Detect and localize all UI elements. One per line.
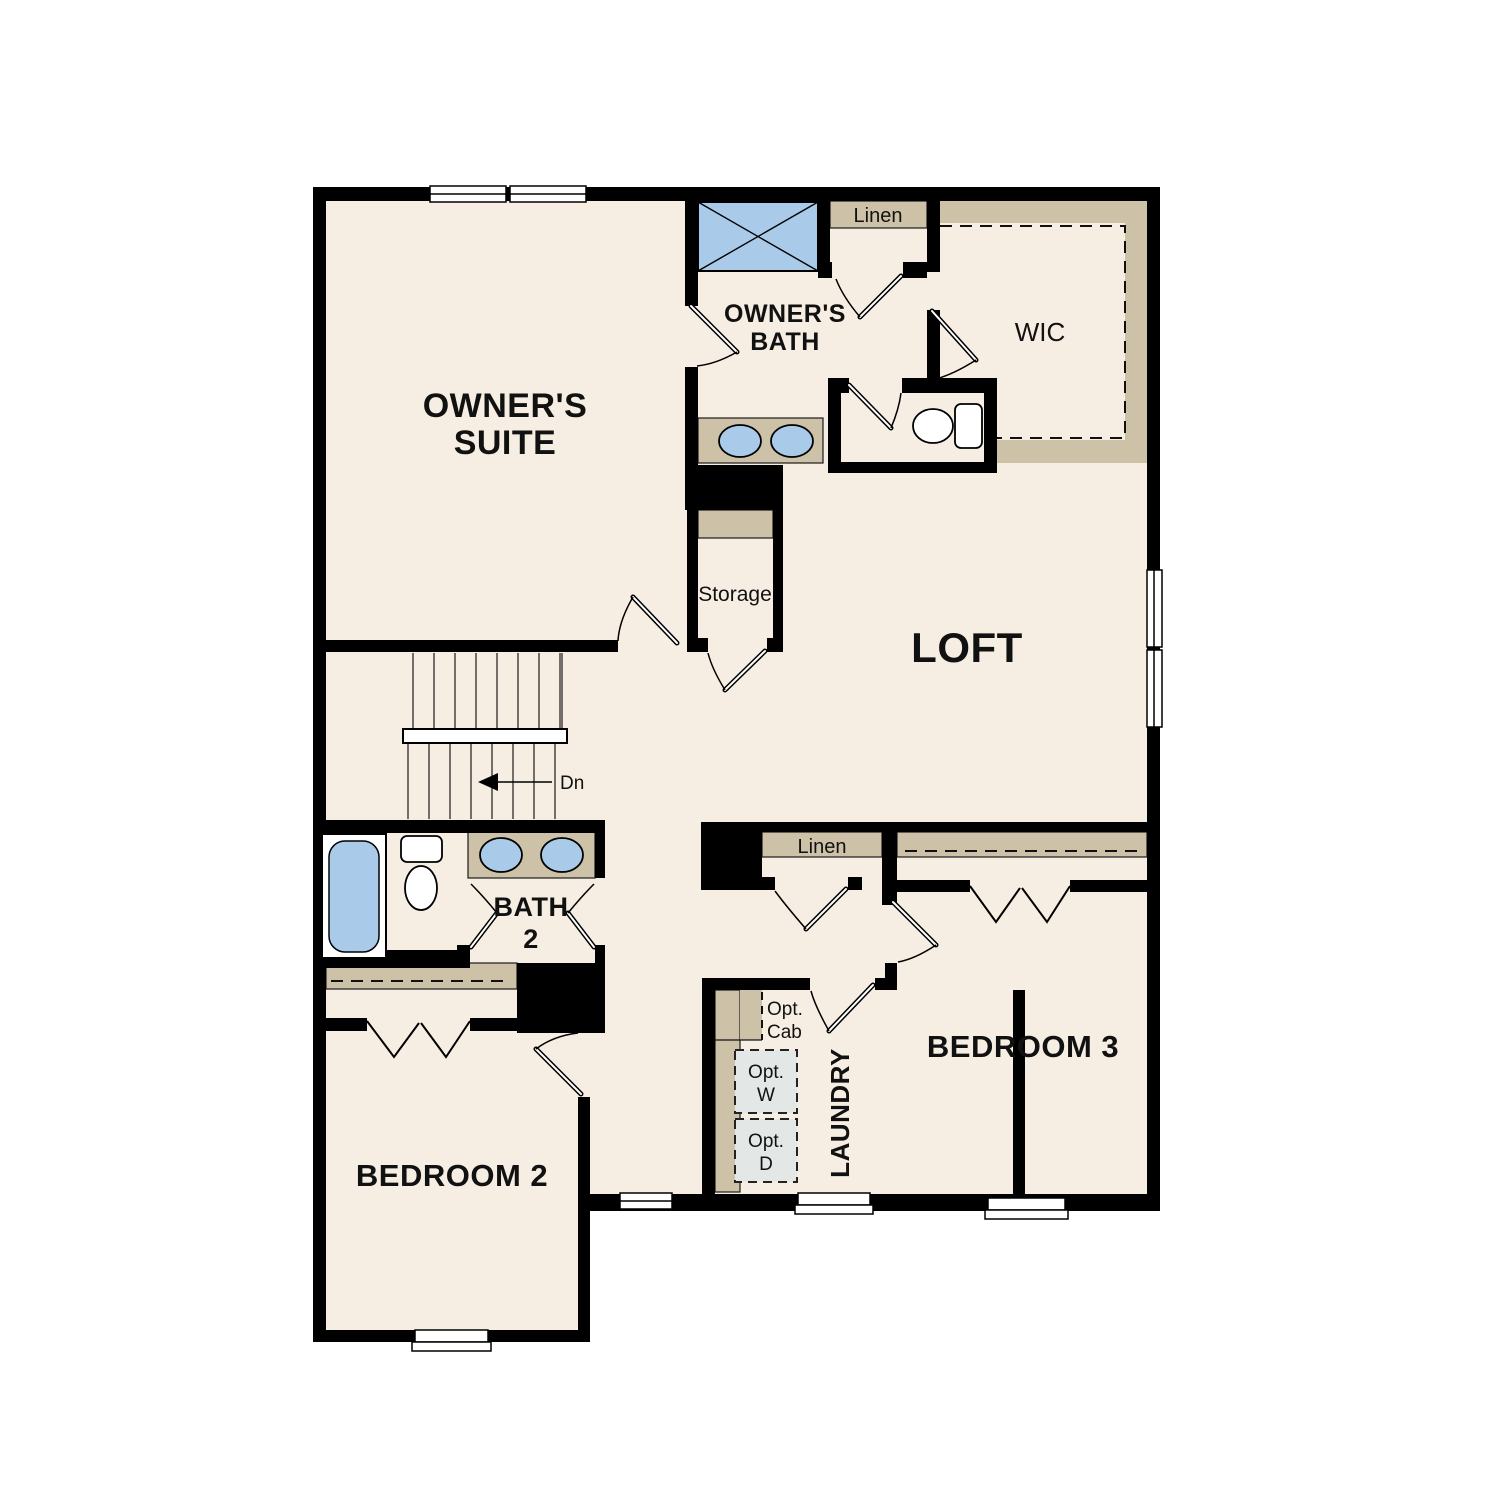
window-bedroom3 bbox=[985, 1198, 1068, 1219]
owners-suite-label-line2: SUITE bbox=[454, 424, 557, 462]
stair-railing bbox=[403, 729, 567, 743]
bedroom3-label: BEDROOM 3 bbox=[927, 1029, 1119, 1064]
wic-shelf-right bbox=[1125, 223, 1147, 440]
bathtub bbox=[322, 834, 386, 958]
opt-cab-label-line2: Cab bbox=[767, 1022, 802, 1043]
bedroom2-label: BEDROOM 2 bbox=[356, 1158, 548, 1193]
linen-top-label: Linen bbox=[854, 205, 903, 227]
window-hallway bbox=[620, 1193, 672, 1209]
window-loft-1 bbox=[1147, 570, 1162, 647]
storage-label: Storage bbox=[698, 583, 772, 606]
window-owners-suite-2 bbox=[510, 186, 586, 202]
opt-cab-label-line1: Opt. bbox=[767, 999, 803, 1020]
laundry-label: LAUNDRY bbox=[825, 1048, 855, 1178]
bath2-label-line2: 2 bbox=[523, 924, 539, 954]
owners-suite-label-line1: OWNER'S bbox=[423, 387, 588, 425]
shower bbox=[698, 202, 818, 271]
owners-bath-label-line2: BATH bbox=[750, 328, 820, 356]
window-loft-2 bbox=[1147, 650, 1162, 727]
storage-shelf bbox=[698, 510, 773, 538]
opt-washer-label-line2: W bbox=[757, 1085, 775, 1106]
floor-plan-canvas: OWNER'S SUITE OWNER'S BATH WIC Linen Sto… bbox=[0, 0, 1500, 1500]
bath2-label-line1: BATH bbox=[494, 892, 569, 922]
stairs-down-label: Dn bbox=[560, 773, 584, 794]
loft-label: LOFT bbox=[911, 624, 1023, 671]
opt-washer-label-line1: Opt. bbox=[748, 1062, 784, 1083]
wic-label: WIC bbox=[1015, 317, 1066, 347]
bedroom3-closet-shelf bbox=[897, 832, 1147, 857]
opt-dryer-label-line1: Opt. bbox=[748, 1131, 784, 1152]
opt-dryer-label-line2: D bbox=[759, 1154, 773, 1175]
wic-shelf-bottom bbox=[997, 440, 1147, 463]
laundry-opt-cabinet bbox=[740, 990, 762, 1040]
window-laundry bbox=[795, 1193, 873, 1214]
floor-plan-drawing: OWNER'S SUITE OWNER'S BATH WIC Linen Sto… bbox=[0, 0, 1500, 1500]
wic-shelf-top bbox=[940, 201, 1147, 223]
window-owners-suite-1 bbox=[430, 186, 506, 202]
window-bedroom2 bbox=[412, 1330, 491, 1351]
owners-bath-label-line1: OWNER'S bbox=[724, 300, 846, 328]
linen-hall-label: Linen bbox=[798, 836, 847, 858]
